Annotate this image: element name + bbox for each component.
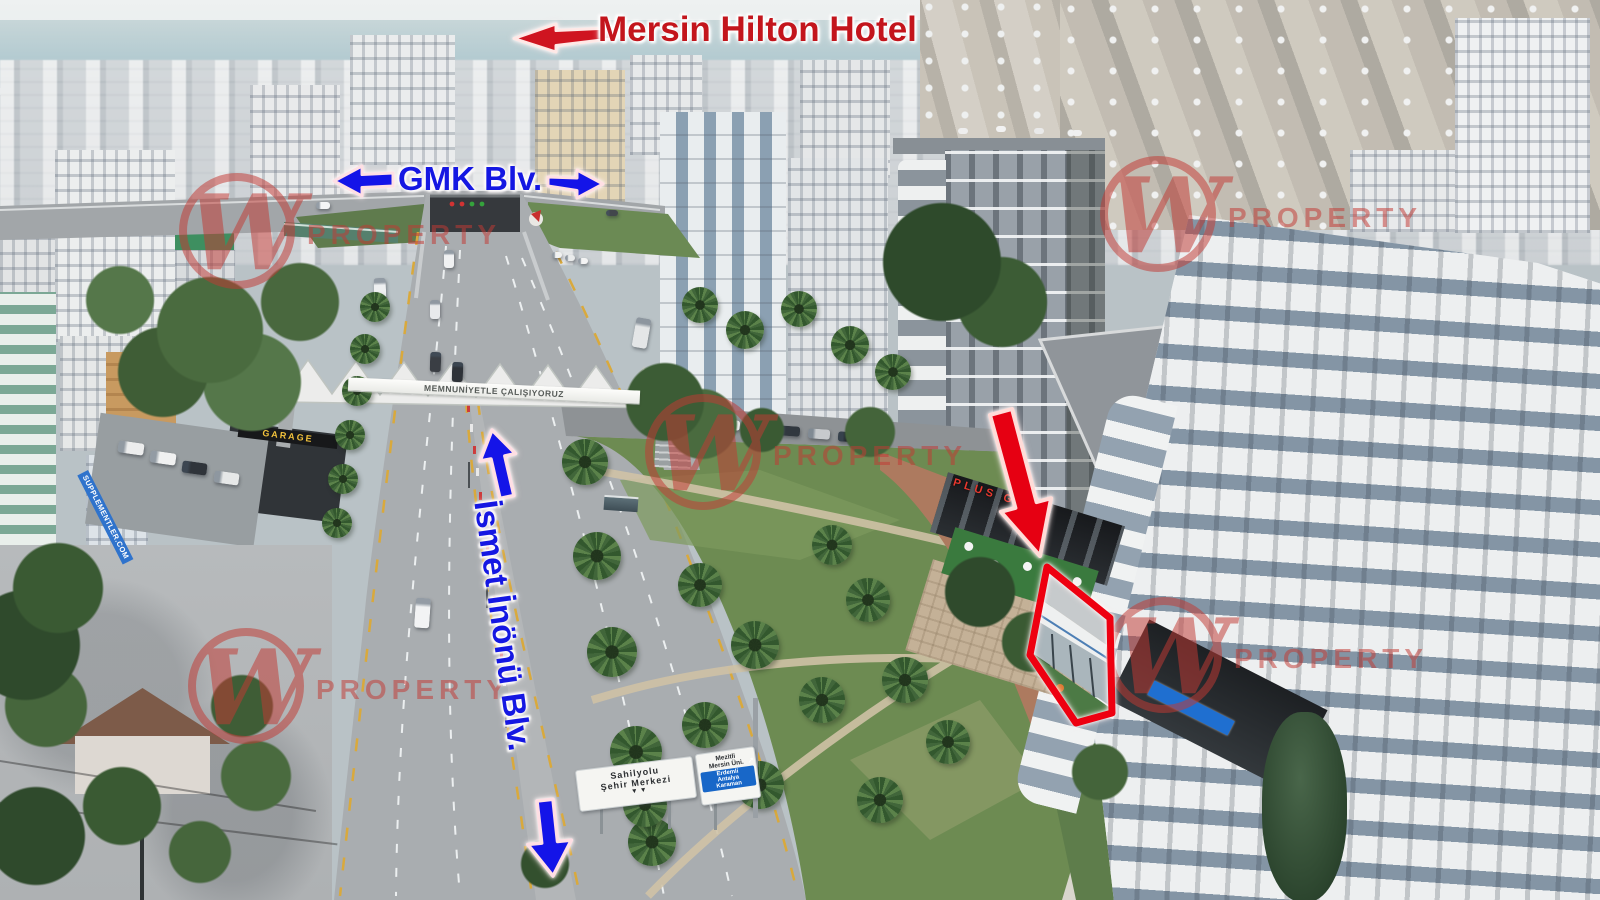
property-arrow xyxy=(990,409,1051,556)
hotel-arrow xyxy=(514,24,610,52)
property-highlight-outline xyxy=(1030,567,1112,723)
hotel-label: Mersin Hilton Hotel xyxy=(598,10,917,50)
gmk-boulevard-label: GMK Blv. xyxy=(398,160,542,198)
aerial-photo: PLUS GYM xyxy=(0,0,1600,900)
boulevard-down-arrow xyxy=(528,799,572,876)
gmk-right-arrow xyxy=(548,170,603,198)
boulevard-up-arrow xyxy=(480,430,516,499)
gmk-left-arrow xyxy=(334,166,393,196)
annotation-layer xyxy=(0,0,1600,900)
